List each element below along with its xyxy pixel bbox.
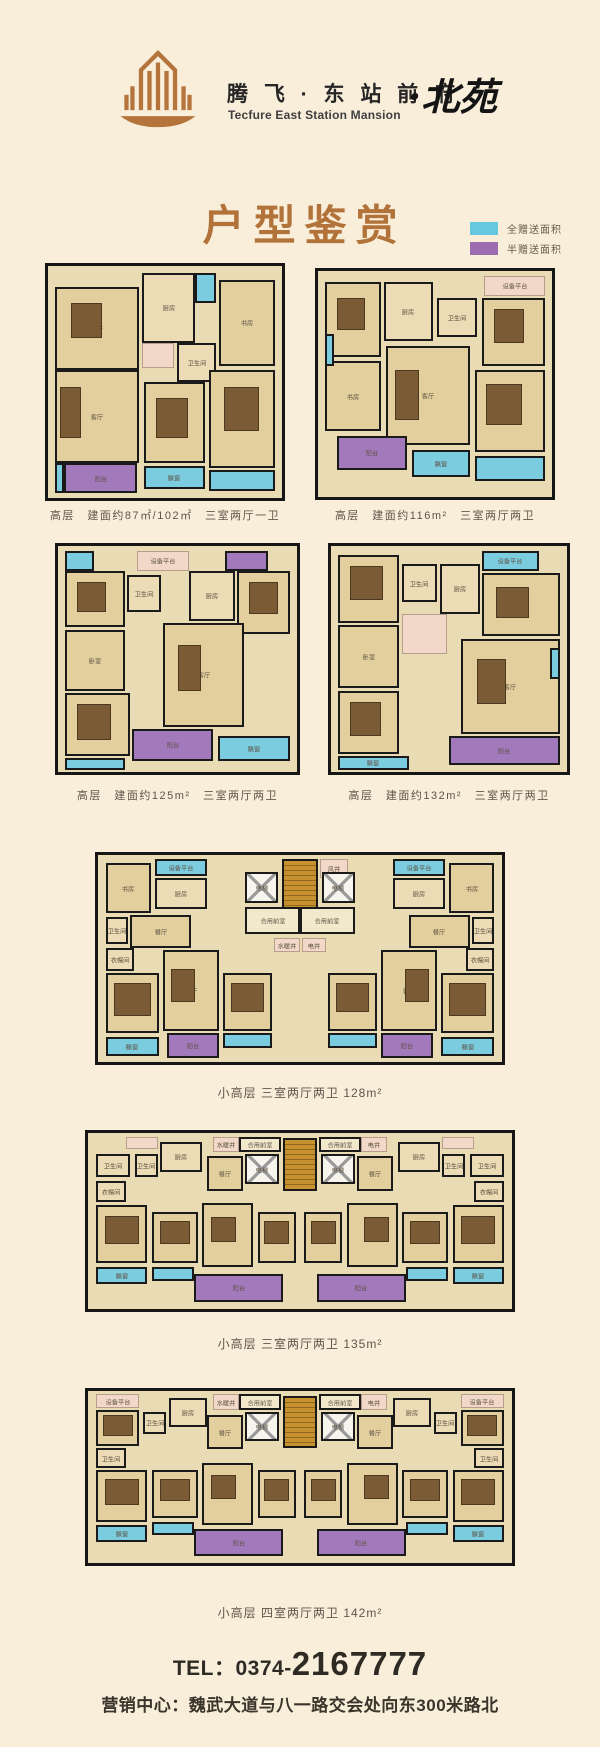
bay-window: 飘窗 [453, 1525, 504, 1542]
phone-number: 2167777 [292, 1645, 427, 1683]
room-kitchen: 厨房 [160, 1142, 202, 1172]
furniture-bed [350, 566, 383, 600]
furniture-bed [461, 1479, 495, 1505]
bay-window: 飘窗 [218, 736, 290, 761]
phone-line: TEL：0374- 2167777 [0, 1645, 600, 1683]
bay-window [328, 1033, 376, 1047]
bay-window: 飘窗 [338, 756, 409, 770]
bay-window: 飘窗 [96, 1267, 147, 1285]
bay-window [406, 1522, 448, 1536]
room-bathroom: 卫生间 [96, 1154, 130, 1177]
elevator: 电梯 [321, 1154, 355, 1184]
room-kitchen: 厨房 [169, 1398, 207, 1427]
plan-caption: 小高层 三室两厅两卫 128m² [0, 1084, 600, 1101]
sales-center-address: 营销中心：魏武大道与八一路交会处向东300米路北 [0, 1691, 600, 1716]
balcony-half: 阳台 [317, 1529, 406, 1557]
hallway [402, 614, 447, 655]
furniture-sofa [364, 1217, 389, 1242]
balcony-half: 阳台 [132, 729, 213, 761]
room-living: 客厅 [461, 639, 560, 734]
equipment-platform: 设备平台 [482, 551, 539, 571]
furniture-bed [467, 1415, 497, 1436]
room-kitchen: 厨房 [384, 282, 433, 341]
floor-plan-135: 合用前室合用前室水暖井电井电梯电梯厨房厨房餐厅餐厅卫生间卫生间卫生间卫生间衣帽间… [85, 1130, 515, 1312]
hallway [142, 343, 175, 369]
room-bathroom: 卫生间 [402, 564, 437, 602]
room-dining: 餐厅 [357, 1156, 393, 1191]
floor-plan-87-102: 餐厅厨房卫生间书房客厅卧室主卧阳台飘窗 [45, 263, 285, 501]
furniture-table [71, 303, 101, 338]
hallway [442, 1137, 474, 1149]
furniture-bed [461, 1216, 495, 1244]
phone-prefix: TEL：0374- [173, 1652, 292, 1682]
electric-shaft: 电井 [361, 1137, 386, 1153]
room-bedroom: 卧室 [65, 630, 125, 691]
furniture-sofa [405, 969, 429, 1002]
balcony-half: 阳台 [167, 1033, 220, 1058]
balcony-half: 阳台 [317, 1274, 406, 1302]
furniture-sofa [211, 1217, 236, 1242]
legend-item-full-gift: 全赠送面积 [470, 222, 562, 235]
bay-window: 飘窗 [96, 1525, 147, 1542]
equipment-platform: 设备平台 [393, 859, 446, 876]
furniture-bed [264, 1221, 289, 1244]
bay-window [65, 758, 125, 769]
furniture-bed [410, 1221, 440, 1244]
room-cloakroom: 衣帽间 [96, 1181, 126, 1202]
balcony-half [225, 551, 268, 571]
bay-window [406, 1267, 448, 1281]
plumbing-shaft: 水暖井 [274, 938, 300, 952]
room-kitchen: 厨房 [440, 564, 480, 614]
stairs [282, 859, 318, 913]
bay-window [65, 551, 94, 571]
shared-foyer: 合用前室 [319, 1137, 361, 1153]
room-kitchen: 厨房 [189, 571, 234, 621]
balcony-half: 阳台 [381, 1033, 434, 1058]
furniture-sofa [477, 659, 505, 704]
furniture-bed [311, 1221, 336, 1244]
elevator: 电梯 [245, 1412, 279, 1441]
balcony-half: 阳台 [449, 736, 560, 765]
room-kitchen: 厨房 [398, 1142, 440, 1172]
brand-logo-icon [115, 42, 201, 134]
plan-caption: 小高层 三室两厅两卫 135m² [0, 1335, 600, 1352]
room-dining: 餐厅 [207, 1156, 243, 1191]
furniture-bed [350, 702, 381, 736]
bay-window [209, 470, 275, 491]
brand-name-en: Tecfure East Station Mansion [228, 108, 401, 122]
plan-caption: 高层 建面约125m² 三室两厅两卫 [55, 787, 300, 803]
bay-window [223, 1033, 271, 1047]
equipment-platform: 设备平台 [137, 551, 190, 571]
balcony-half: 阳台 [194, 1274, 283, 1302]
room-bathroom: 卫生间 [437, 298, 477, 336]
bay-window [55, 463, 64, 493]
furniture-bed [103, 1415, 133, 1436]
room-dining: 餐厅 [409, 915, 470, 948]
furniture-bed [494, 309, 524, 343]
bay-window: 飘窗 [412, 450, 471, 477]
balcony-half: 阳台 [194, 1529, 283, 1557]
room-living: 客厅 [163, 623, 244, 727]
room-study: 书房 [219, 280, 275, 366]
furniture-bed [105, 1479, 139, 1505]
furniture-sofa [178, 645, 202, 690]
floor-plan-128: 风井电梯电梯合用前室合用前室水暖井电井书房书房设备平台设备平台厨房厨房餐厅餐厅卫… [95, 852, 505, 1065]
plumbing-shaft: 水暖井 [213, 1137, 238, 1153]
bay-window: 飘窗 [144, 466, 205, 489]
furniture-table [337, 298, 365, 330]
furniture-bed [449, 983, 485, 1016]
electric-shaft: 电井 [361, 1394, 386, 1409]
property-poster: 腾 飞 · 东 站 前 府 Tecfure East Station Mansi… [0, 0, 600, 1747]
balcony-half: 阳台 [64, 463, 137, 493]
room-bathroom: 卫生间 [442, 1154, 465, 1177]
furniture-table [249, 582, 278, 614]
furniture-sofa [364, 1475, 389, 1499]
furniture-bed [231, 983, 263, 1012]
shared-foyer: 合用前室 [319, 1394, 361, 1409]
room-study: 书房 [449, 863, 493, 913]
floor-plan-125: 设备平台卧室卫生间厨房餐厅卧室客厅主卧阳台飘窗 [55, 543, 300, 775]
room-bathroom: 卫生间 [472, 917, 494, 944]
equipment-platform: 设备平台 [484, 276, 545, 296]
room-cloakroom: 衣帽间 [466, 948, 494, 971]
plumbing-shaft: 水暖井 [213, 1394, 238, 1409]
equipment-platform: 设备平台 [461, 1394, 503, 1408]
furniture-bed [156, 398, 189, 437]
furniture-bed [486, 384, 521, 425]
equipment-platform: 设备平台 [96, 1394, 138, 1408]
furniture-bed [77, 704, 110, 740]
furniture-bed [264, 1479, 289, 1501]
room-dining: 餐厅 [130, 915, 191, 948]
bay-window [152, 1267, 194, 1281]
room-kitchen: 厨房 [142, 273, 196, 343]
shared-foyer: 合用前室 [300, 907, 355, 934]
elevator: 电梯 [245, 1154, 279, 1184]
furniture-bed [77, 582, 106, 611]
electric-shaft: 电井 [302, 938, 326, 952]
room-bathroom: 卫生间 [127, 575, 160, 611]
stairs [283, 1138, 317, 1191]
furniture-sofa [60, 387, 81, 438]
shared-foyer: 合用前室 [239, 1394, 281, 1409]
plan-caption: 高层 建面约116m² 三室两厅两卫 [315, 507, 555, 523]
room-study: 书房 [106, 863, 150, 913]
room-bedroom: 卧室 [338, 625, 399, 688]
floor-plan-132: 主卧卫生间厨房设备平台餐厅卧室客厅卧室阳台飘窗 [328, 543, 570, 775]
shared-foyer: 合用前室 [245, 907, 300, 934]
plan-caption: 高层 建面约132m² 三室两厅两卫 [328, 787, 570, 803]
bay-window: 飘窗 [441, 1037, 494, 1056]
bay-window: 飘窗 [106, 1037, 159, 1056]
room-dining: 餐厅 [207, 1415, 243, 1449]
hallway [126, 1137, 158, 1149]
furniture-bed [114, 983, 150, 1016]
legend-swatch-half-gift-icon [470, 242, 498, 255]
furniture-bed [105, 1216, 139, 1244]
room-bathroom: 卫生间 [434, 1412, 457, 1434]
furniture-bed [160, 1221, 190, 1244]
balcony-half: 阳台 [337, 436, 407, 470]
room-dining: 餐厅 [357, 1415, 393, 1449]
room-bathroom: 卫生间 [135, 1154, 158, 1177]
room-bathroom: 卫生间 [470, 1154, 504, 1177]
furniture-sofa [171, 969, 195, 1002]
brand-suffix-beiyuan: ·北苑 [408, 66, 497, 121]
room-cloakroom: 衣帽间 [106, 948, 134, 971]
floor-plan-116: 餐厅厨房设备平台卫生间卧室客厅书房主卧阳台飘窗 [315, 268, 555, 500]
room-bathroom: 卫生间 [106, 917, 128, 944]
bay-window [152, 1522, 194, 1536]
room-bathroom: 卫生间 [143, 1412, 166, 1434]
bay-window [550, 648, 559, 680]
shared-foyer: 合用前室 [239, 1137, 281, 1153]
furniture-bed [336, 983, 368, 1012]
furniture-bed [410, 1479, 440, 1501]
equipment-platform: 设备平台 [155, 859, 208, 876]
room-study: 书房 [325, 361, 381, 431]
furniture-sofa [395, 370, 418, 420]
bay-window [325, 334, 334, 366]
furniture-table [496, 587, 529, 619]
bay-window [195, 273, 216, 303]
plan-caption: 小高层 四室两厅两卫 142m² [0, 1604, 600, 1621]
bay-window [475, 456, 545, 481]
floor-plan-142: 合用前室合用前室水暖井电井电梯电梯设备平台设备平台卧室卧室厨房厨房餐厅餐厅卫生间… [85, 1388, 515, 1566]
bay-window: 飘窗 [453, 1267, 504, 1285]
stairs [283, 1396, 317, 1448]
room-bathroom: 卫生间 [96, 1448, 126, 1469]
room-cloakroom: 衣帽间 [474, 1181, 504, 1202]
room-bathroom: 卫生间 [474, 1448, 504, 1469]
plan-caption: 高层 建面约87㎡/102㎡ 三室两厅一卫 [45, 507, 285, 523]
furniture-bed [311, 1479, 336, 1501]
furniture-bed [224, 387, 259, 431]
furniture-bed [160, 1479, 190, 1501]
legend-item-half-gift: 半赠送面积 [470, 242, 562, 255]
room-kitchen: 厨房 [393, 1398, 431, 1427]
room-kitchen: 厨房 [155, 878, 208, 909]
furniture-sofa [211, 1475, 236, 1499]
legend-label: 半赠送面积 [507, 241, 562, 256]
legend-swatch-full-gift-icon [470, 222, 498, 235]
elevator: 电梯 [322, 872, 354, 903]
elevator: 电梯 [321, 1412, 355, 1441]
legend-label: 全赠送面积 [507, 221, 562, 236]
room-kitchen: 厨房 [393, 878, 446, 909]
elevator: 电梯 [245, 872, 277, 903]
